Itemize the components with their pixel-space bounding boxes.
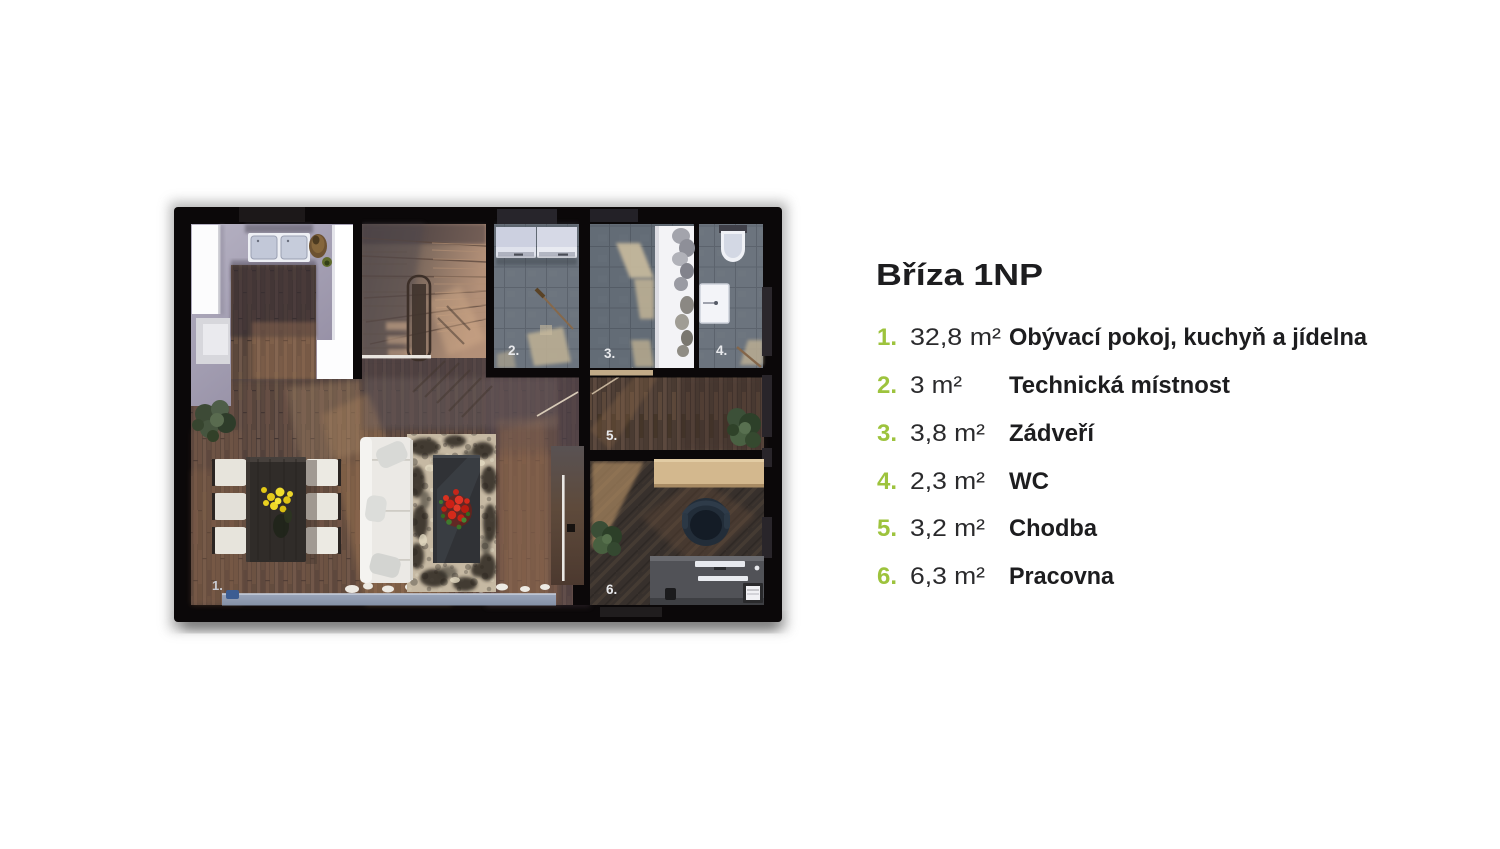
- svg-text:3.: 3.: [604, 346, 615, 361]
- svg-text:3,2 m²: 3,2 m²: [910, 515, 985, 542]
- svg-text:6.: 6.: [877, 563, 897, 590]
- svg-text:32,8 m²: 32,8 m²: [910, 324, 1001, 351]
- svg-text:Obývací pokoj, kuchyň a jídeln: Obývací pokoj, kuchyň a jídelna: [1009, 324, 1368, 351]
- svg-text:1.: 1.: [877, 324, 897, 351]
- svg-text:WC: WC: [1009, 468, 1049, 495]
- svg-text:3.: 3.: [877, 420, 897, 447]
- svg-text:2.: 2.: [508, 343, 519, 358]
- svg-text:2,3 m²: 2,3 m²: [910, 468, 985, 495]
- svg-text:Chodba: Chodba: [1009, 515, 1098, 542]
- svg-text:1.: 1.: [212, 578, 223, 593]
- svg-text:4.: 4.: [877, 468, 897, 495]
- svg-text:5.: 5.: [877, 515, 897, 542]
- svg-text:Bříza 1NP: Bříza 1NP: [876, 257, 1043, 292]
- svg-text:Pracovna: Pracovna: [1009, 563, 1115, 590]
- svg-text:6,3 m²: 6,3 m²: [910, 563, 985, 590]
- svg-text:3 m²: 3 m²: [910, 372, 962, 399]
- svg-text:5.: 5.: [606, 428, 617, 443]
- svg-text:2.: 2.: [877, 372, 897, 399]
- svg-text:3,8 m²: 3,8 m²: [910, 420, 985, 447]
- svg-text:6.: 6.: [606, 582, 617, 597]
- svg-text:Technická místnost: Technická místnost: [1009, 372, 1230, 399]
- svg-text:4.: 4.: [716, 343, 727, 358]
- svg-text:Zádveří: Zádveří: [1009, 420, 1095, 447]
